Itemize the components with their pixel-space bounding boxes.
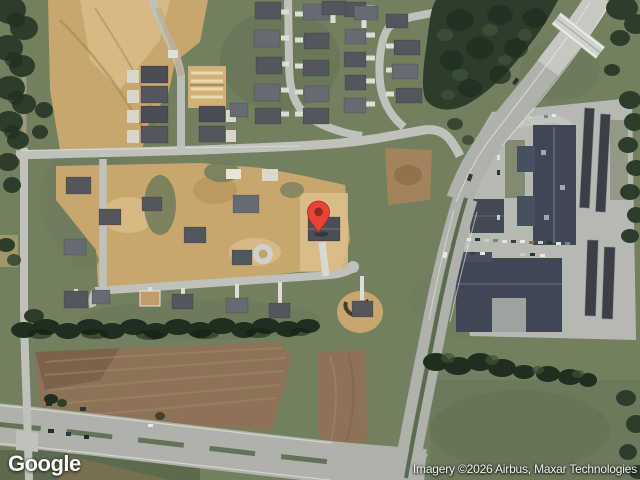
satellite-imagery [0,0,640,480]
map-canvas[interactable]: Google Imagery ©2026 Airbus, Maxar Techn… [0,0,640,480]
google-logo[interactable]: Google [8,451,81,477]
attribution-text: Imagery ©2026 Airbus, Maxar Technologies [413,462,637,476]
